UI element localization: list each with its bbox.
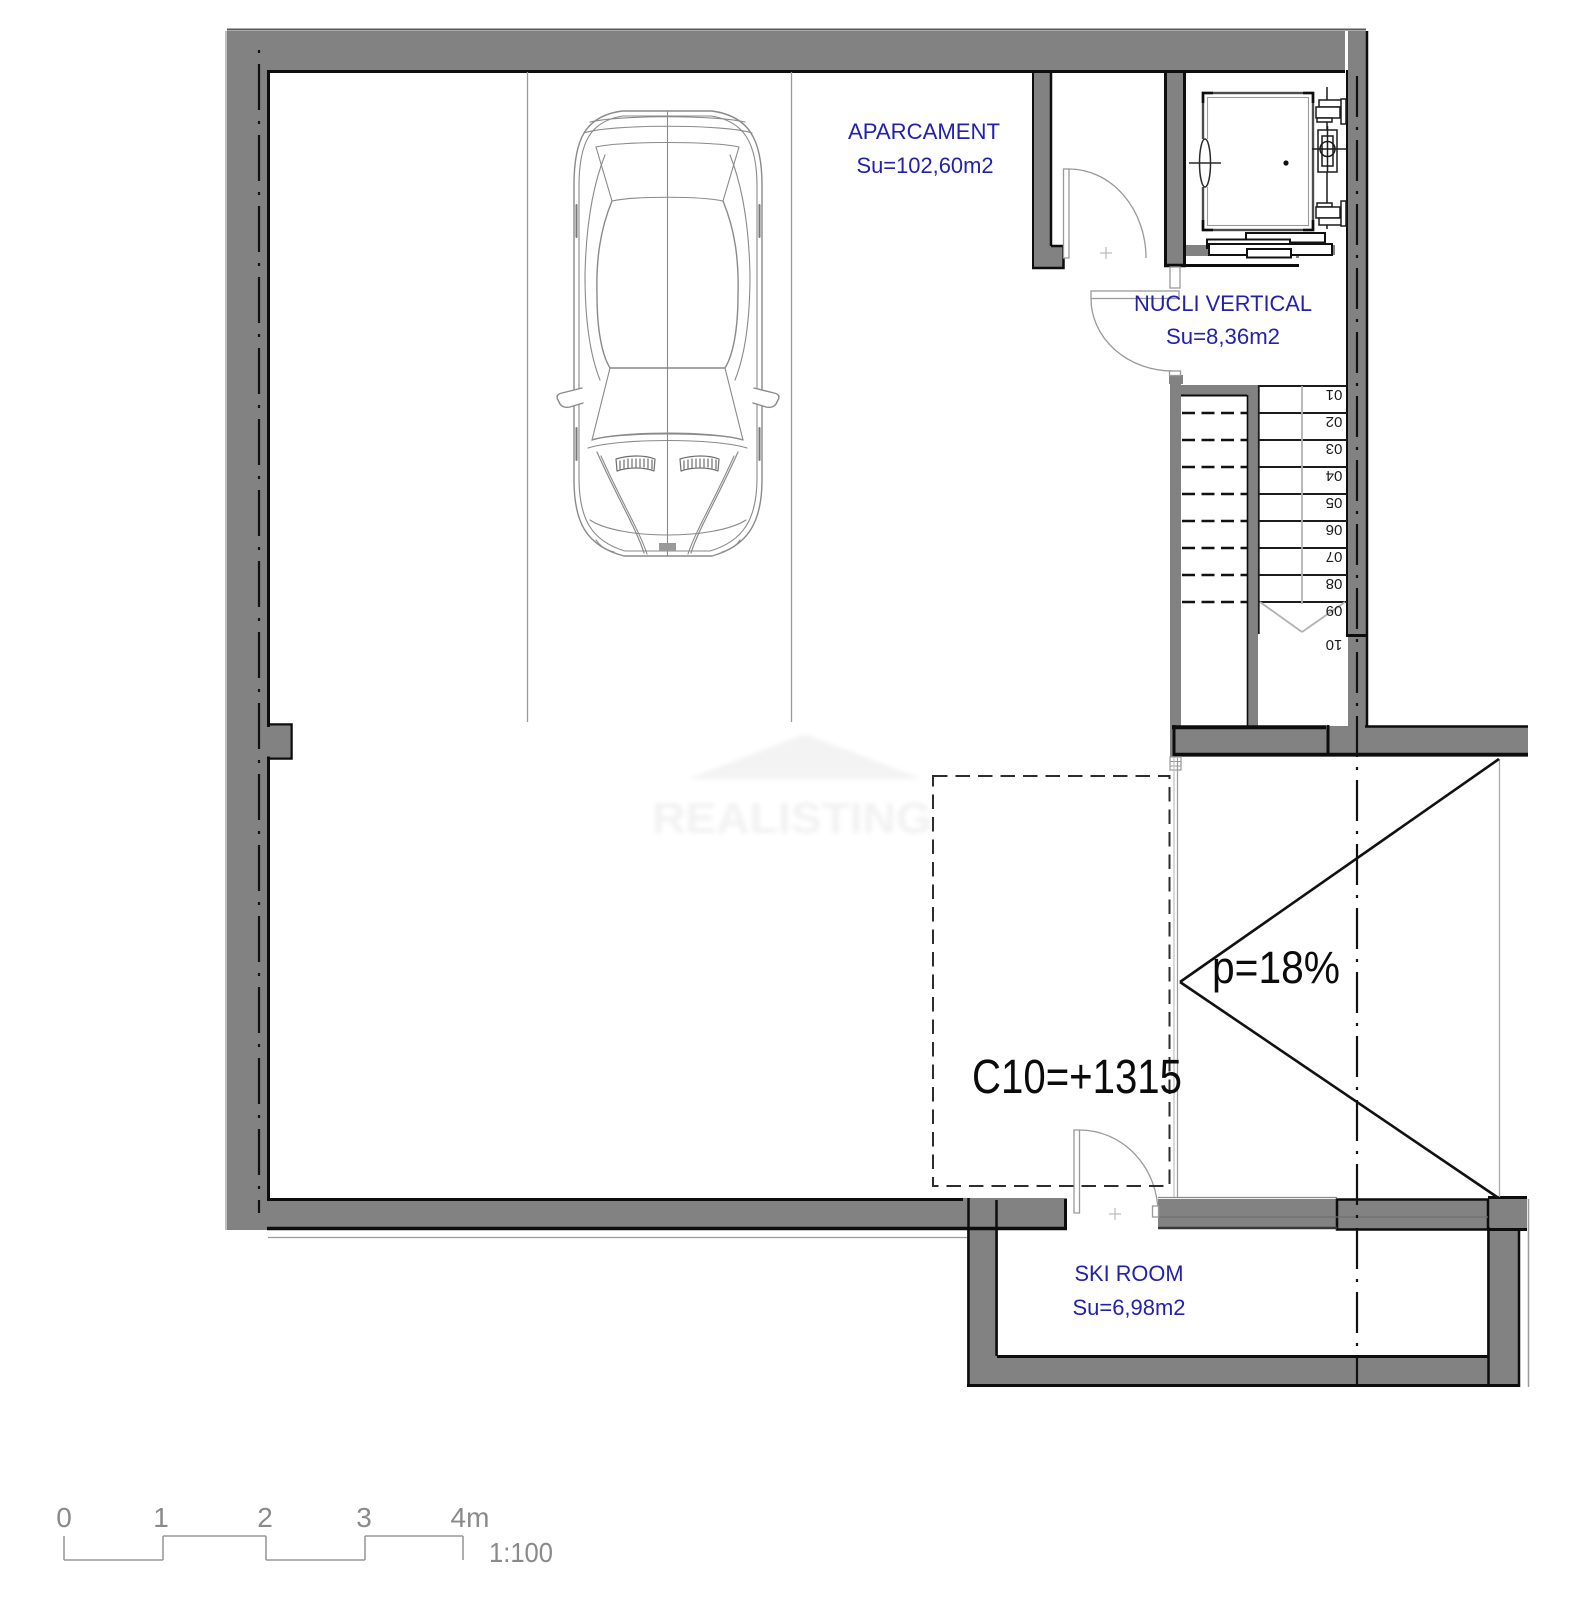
svg-text:06: 06 <box>1326 521 1343 538</box>
svg-text:Su=102,60m2: Su=102,60m2 <box>857 153 994 178</box>
svg-text:02: 02 <box>1326 413 1343 430</box>
svg-text:07: 07 <box>1326 548 1343 565</box>
svg-text:05: 05 <box>1326 494 1343 511</box>
svg-text:2: 2 <box>257 1502 273 1533</box>
svg-text:10: 10 <box>1326 636 1343 653</box>
svg-text:APARCAMENT: APARCAMENT <box>848 119 1000 144</box>
svg-text:1:100: 1:100 <box>489 1537 553 1568</box>
svg-text:04: 04 <box>1326 467 1343 484</box>
svg-text:Su=6,98m2: Su=6,98m2 <box>1073 1295 1186 1320</box>
svg-text:SKI ROOM: SKI ROOM <box>1075 1261 1184 1286</box>
svg-text:3: 3 <box>356 1502 372 1533</box>
svg-text:0: 0 <box>56 1502 72 1533</box>
svg-text:C10=+1315: C10=+1315 <box>972 1051 1182 1104</box>
svg-text:1: 1 <box>153 1502 169 1533</box>
svg-text:03: 03 <box>1326 440 1343 457</box>
svg-text:NUCLI VERTICAL: NUCLI VERTICAL <box>1134 291 1312 316</box>
svg-text:01: 01 <box>1326 386 1343 403</box>
svg-text:08: 08 <box>1326 575 1343 592</box>
svg-text:4m: 4m <box>451 1502 490 1533</box>
svg-text:Su=8,36m2: Su=8,36m2 <box>1166 324 1280 349</box>
svg-text:09: 09 <box>1326 602 1343 619</box>
svg-text:REALISTING: REALISTING <box>652 794 932 843</box>
svg-text:p=18%: p=18% <box>1212 942 1340 993</box>
